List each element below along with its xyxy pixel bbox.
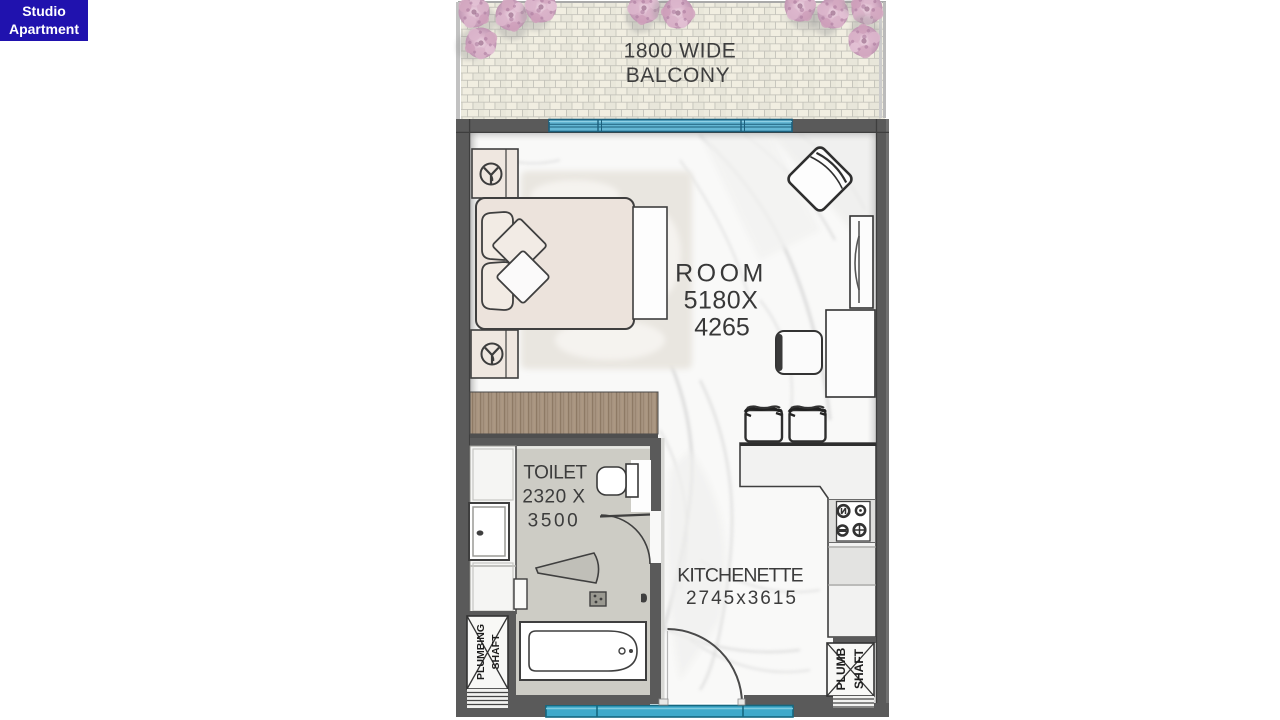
svg-text:KITCHENETTE: KITCHENETTE (677, 565, 803, 587)
svg-text:ROOM: ROOM (675, 260, 767, 288)
svg-text:PLUMB: PLUMB (834, 647, 848, 690)
svg-text:2320 X: 2320 X (522, 487, 585, 508)
svg-text:1800 WIDE: 1800 WIDE (624, 40, 737, 63)
svg-text:3500: 3500 (528, 511, 581, 532)
svg-text:SHAFT: SHAFT (852, 648, 866, 689)
svg-text:2745x3615: 2745x3615 (686, 588, 798, 609)
svg-text:5180X: 5180X (684, 287, 759, 315)
svg-text:TOILET: TOILET (523, 463, 587, 484)
svg-text:BALCONY: BALCONY (626, 64, 731, 87)
svg-text:PLUMBING: PLUMBING (475, 624, 487, 680)
svg-text:SHAFT: SHAFT (490, 634, 502, 670)
svg-text:4265: 4265 (694, 314, 750, 342)
